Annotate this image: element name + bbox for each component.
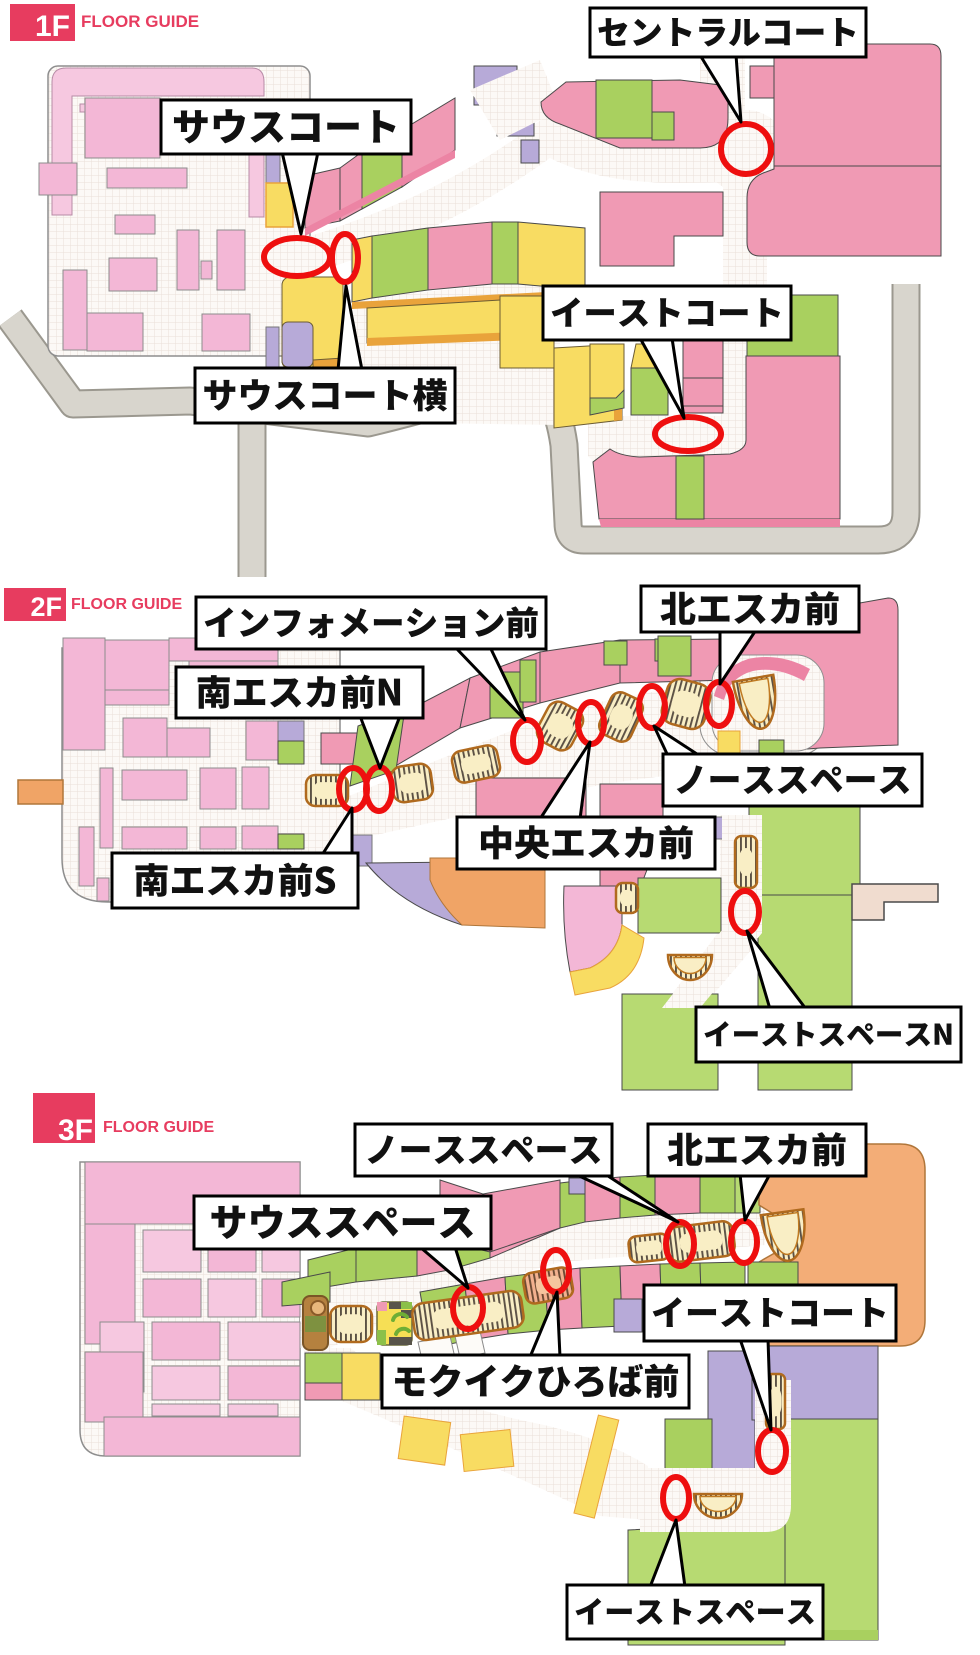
svg-text:FLOOR GUIDE: FLOOR GUIDE	[71, 596, 182, 613]
svg-text:1F: 1F	[35, 10, 70, 43]
svg-text:FLOOR GUIDE: FLOOR GUIDE	[81, 12, 199, 31]
svg-text:3F: 3F	[58, 1114, 93, 1147]
svg-text:2F: 2F	[30, 592, 62, 622]
svg-text:FLOOR GUIDE: FLOOR GUIDE	[103, 1119, 214, 1136]
